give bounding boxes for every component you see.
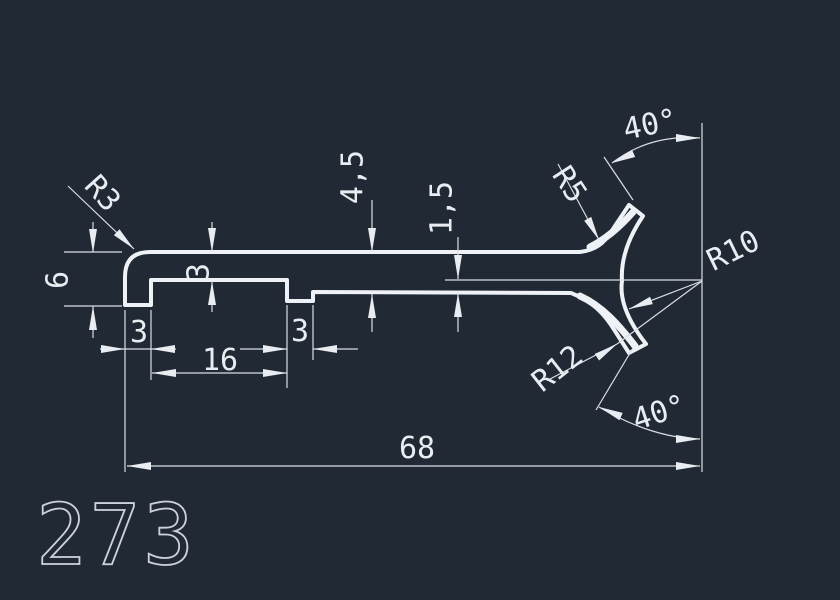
dim-r5-label: R5 [545, 160, 594, 209]
part-number: 273 [36, 486, 197, 584]
arrow-r3 [114, 229, 134, 249]
arrow-16-left [152, 369, 176, 377]
arrow-16-right [263, 369, 287, 377]
dimension-lines [64, 123, 702, 472]
cad-drawing-viewport[interactable]: 68 16 3 3 3 6 4,5 1,5 R3 R5 R10 R12 40° … [0, 0, 840, 600]
arrow-r10 [629, 297, 653, 309]
arrow-3-notch-right [313, 345, 337, 353]
leader-r10-b [617, 281, 702, 344]
arrow-3-leg-left [101, 345, 125, 353]
arrow-68-right [676, 462, 700, 470]
upper-prong-wall [590, 212, 633, 247]
dim-40-top-label: 40° [620, 102, 680, 148]
dimension-arrows [89, 134, 700, 470]
arrow-68-left [127, 462, 151, 470]
dim-3-strip-label: 3 [182, 263, 217, 281]
dim-r10-label: R10 [701, 223, 765, 278]
arrow-15-bottom [454, 293, 462, 317]
dim-16-label: 16 [202, 343, 238, 378]
angle-top-extension [604, 157, 633, 200]
cad-canvas: 68 16 3 3 3 6 4,5 1,5 R3 R5 R10 R12 40° … [0, 0, 840, 600]
arrow-45-bottom [368, 294, 376, 318]
dim-r12-label: R12 [525, 338, 589, 399]
arrow-6-top [89, 229, 97, 253]
dim-r3-label: R3 [77, 169, 127, 219]
arrow-40-bottom-left [599, 407, 623, 420]
dim-40-bottom-label: 40° [628, 388, 690, 438]
arrow-45-top [368, 228, 376, 252]
arrow-r12 [595, 344, 617, 361]
dim-68-label: 68 [399, 431, 435, 466]
arrow-3-strip-bottom [208, 281, 216, 305]
arrow-3-strip-top [208, 228, 216, 252]
arrow-3-leg-right [151, 345, 175, 353]
arrow-6-bottom [89, 306, 97, 330]
arrow-15-top [454, 255, 462, 279]
dim-3-leg-label: 3 [130, 315, 148, 350]
arrow-r5 [584, 217, 599, 240]
arrow-3-notch-left [263, 345, 287, 353]
dim-15-label: 1,5 [425, 181, 460, 235]
dim-6-label: 6 [41, 271, 76, 289]
dim-3-notch-label: 3 [291, 314, 309, 349]
arrow-40-top-left [612, 150, 635, 163]
dim-45-label: 4,5 [336, 150, 371, 204]
arrow-40-bottom-right [676, 435, 700, 443]
